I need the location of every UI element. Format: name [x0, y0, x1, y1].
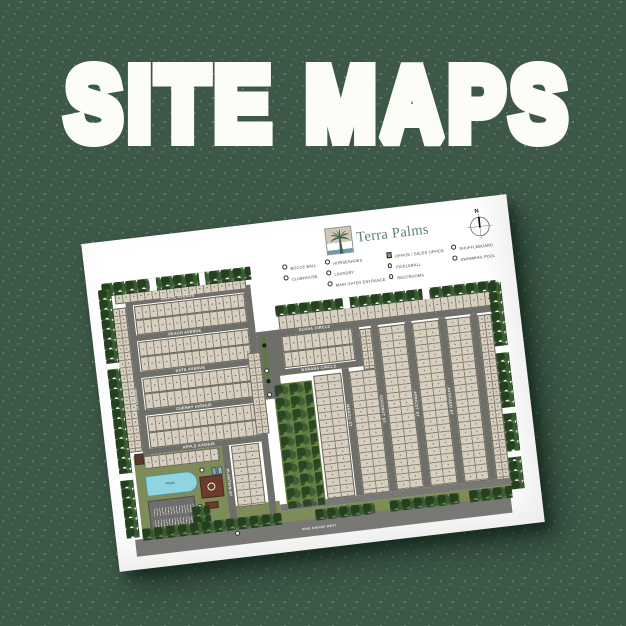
svg-text:SITE MAPS: SITE MAPS [66, 47, 573, 162]
